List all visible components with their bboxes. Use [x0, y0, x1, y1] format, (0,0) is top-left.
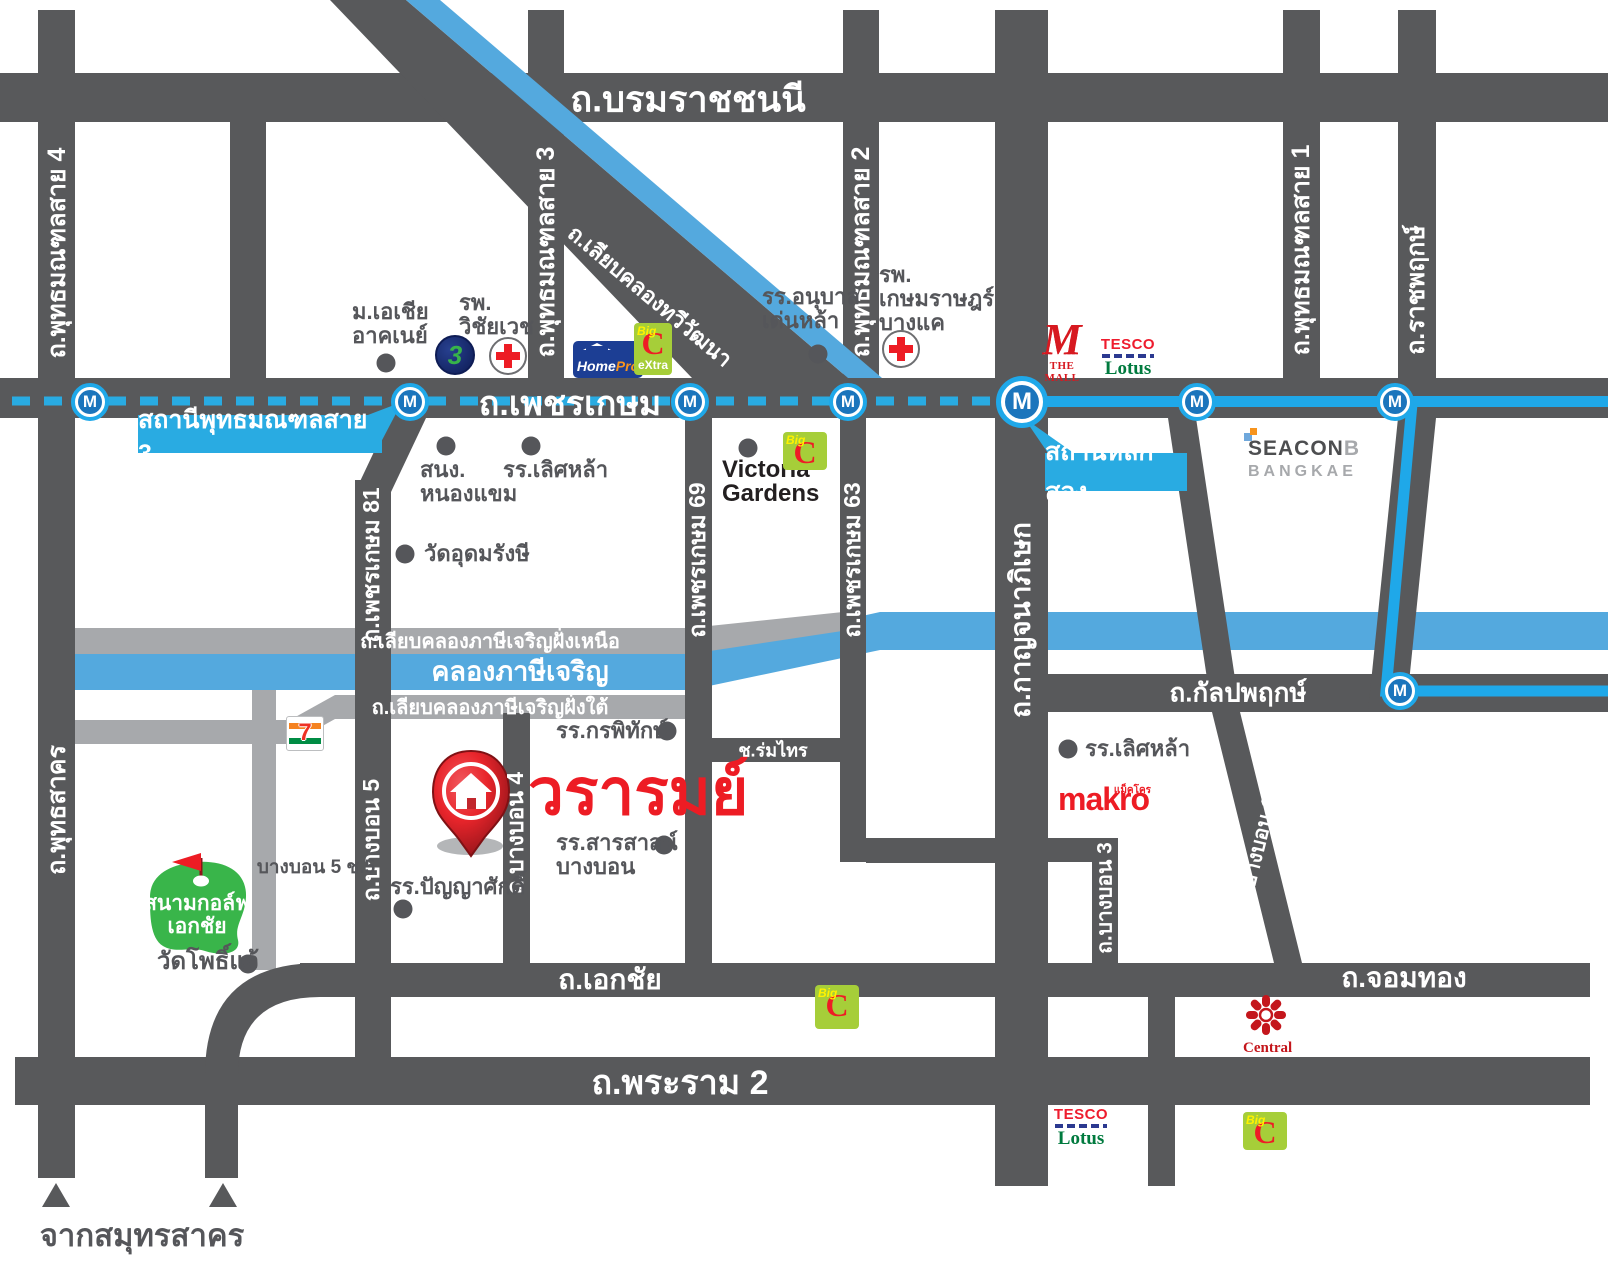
landmark-asia-university: ม.เอเชีย อาคเนย์	[352, 300, 429, 348]
hospital-cross-icon	[882, 330, 920, 368]
central-flower-icon	[1243, 994, 1289, 1036]
road-label-kanlapaphruek: ถ.กัลปพฤกษ์	[1170, 673, 1307, 714]
map-base-shapes	[0, 0, 1608, 1264]
landmark-kasemrad-hospital: รพ. เกษมราษฎร์ บางแค	[879, 263, 994, 335]
mrt-station-icon: M	[1376, 383, 1414, 421]
landmark-wat-udomrangsi: วัดอุดมรังษี	[424, 542, 530, 566]
road-label-phutthasakhon: ถ.พุทธสาคร	[37, 745, 77, 875]
mrt-station-icon: M	[1178, 383, 1216, 421]
from-samut-sakhon-label: จากสมุทรสาคร	[40, 1210, 245, 1260]
mrt-station-icon-kanlapaphruek: M	[1381, 672, 1419, 710]
landmark-wichaiwej-hospital: รพ. วิชัยเวช	[459, 291, 534, 339]
project-name: วรารมย์	[528, 762, 748, 822]
hospital-cross-icon	[489, 337, 527, 375]
bigc-logo: Big C	[815, 985, 859, 1029]
tesco-lotus-logo: TESCO Lotus	[1098, 338, 1158, 378]
from-samut-sakhon-arrows	[42, 1183, 237, 1207]
landmark-wat-pho-chae: วัดโพธิ์แจ้	[157, 950, 259, 974]
road-label-phutthamonthon-sai4: ถ.พุทธมณฑลสาย 4	[37, 148, 77, 359]
road-label-soi-rom-sai: ช.ร่มไทร	[738, 736, 807, 765]
landmark-kornpitack-school: รร.กรพิทักษ์	[556, 719, 668, 743]
channel3-icon: 3	[435, 335, 475, 375]
station-callout-phutthamonthon-sai3: สถานีพุทธมณฑลสาย 3	[138, 415, 382, 453]
road-label-bangbon5: ถ.บางบอน 5	[354, 779, 390, 901]
mrt-station-icon: M	[71, 383, 109, 421]
golf-hole	[193, 876, 209, 887]
road-label-borommaratchachonnani: ถ.บรมราชชนนี	[570, 71, 805, 128]
road-label-ratchaphruek: ถ.ราชพฤกษ์	[1396, 225, 1436, 355]
station-callout-lak-song: สถานีหลักสอง	[1045, 453, 1187, 491]
homepro-roof-icon	[583, 343, 611, 350]
road-label-bangbon3: ถ.บางบอน 3	[1089, 842, 1122, 954]
bigc-logo: Big C	[783, 432, 827, 470]
road-label-phutthamonthon-sai1: ถ.พุทธมณฑลสาย 1	[1281, 145, 1321, 356]
canal-label-phasi-charoen: คลองภาษีเจริญ	[431, 650, 608, 693]
landmark-panyasak-school: รร.ปัญญาศักดิ์	[390, 875, 525, 899]
mrt-station-icon: M	[391, 383, 429, 421]
seven-eleven-logo: 7	[286, 716, 324, 751]
road-label-ekachai: ถ.เอกชัย	[558, 958, 661, 1002]
landmark-dot	[739, 439, 758, 458]
road-label-bangbon5-soi5: บางบอน 5 ช.5	[257, 852, 375, 882]
seacon-bangkae-logo: SEACONB BANGKAE	[1248, 437, 1360, 483]
mrt-station-icon: M	[671, 383, 709, 421]
landmark-dot	[809, 345, 828, 364]
bigc-extra-logo: Big C eXtra	[634, 323, 672, 375]
landmark-ekachai-golf-course: สนามกอล์ฟ เอกชัย	[144, 892, 250, 938]
landmark-lertlah-school-north: รร.เลิศหล้า	[503, 458, 608, 482]
mrt-station-icon: M	[829, 383, 867, 421]
landmark-dot	[396, 545, 415, 564]
road-label-chom-thong: ถ.จอมทอง	[1341, 956, 1466, 1000]
road-label-phetkasem81: ถ.เพชรเกษม 81	[354, 487, 390, 642]
landmark-dot	[522, 437, 541, 456]
location-map: ถ.บรมราชชนนี ถ.เพชรเกษม ถ.พุทธมณฑลสาย 4 …	[0, 0, 1608, 1264]
landmark-dot	[394, 900, 413, 919]
makro-logo: makro แม็คโคร	[1058, 784, 1149, 814]
landmark-dot	[437, 437, 456, 456]
road-label-kanchanaphisek: ถ.กาญจนาภิเษก	[999, 522, 1043, 718]
road-label-rama2: ถ.พระราม 2	[591, 1055, 768, 1109]
tesco-lotus-logo: TESCO Lotus	[1051, 1108, 1111, 1148]
landmark-lertlah-school-south: รร.เลิศหล้า	[1085, 737, 1190, 761]
road-label-phetkasem: ถ.เพชรเกษม	[479, 376, 661, 430]
the-mall-logo: M THE MALL	[1036, 320, 1088, 384]
road-label-phetkasem63: ถ.เพชรเกษม 63	[835, 482, 871, 637]
central-logo: Central	[1243, 994, 1289, 1055]
landmark-dot	[1059, 740, 1078, 759]
bigc-logo: Big C	[1243, 1112, 1287, 1150]
homepro-logo: HomePro	[573, 341, 643, 378]
roads	[0, 0, 1608, 1186]
landmark-dot	[377, 354, 396, 373]
landmark-sarasas-school: รร.สารสาสน์ บางบอน	[556, 831, 678, 879]
seacon-square-icon	[1250, 428, 1257, 435]
road-label-phetkasem69: ถ.เพชรเกษม 69	[680, 482, 716, 637]
landmark-denla-kindergarten: รร.อนุบาล เด่นหล้า	[762, 285, 860, 333]
